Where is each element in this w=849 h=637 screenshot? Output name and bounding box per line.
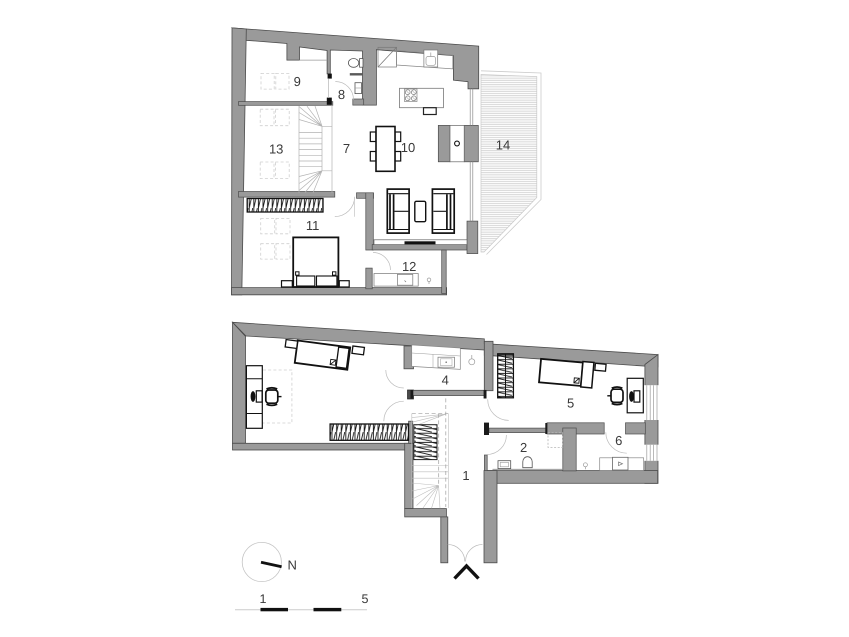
svg-text:1: 1 [462, 468, 469, 483]
svg-text:10: 10 [401, 140, 415, 155]
svg-text:14: 14 [496, 138, 510, 153]
svg-text:12: 12 [402, 259, 416, 274]
svg-text:4: 4 [442, 372, 449, 387]
svg-text:6: 6 [615, 433, 622, 448]
svg-text:11: 11 [306, 218, 320, 233]
svg-text:2: 2 [520, 440, 527, 455]
svg-text:N: N [288, 558, 297, 573]
svg-text:5: 5 [567, 395, 574, 410]
svg-text:13: 13 [269, 142, 283, 157]
svg-text:9: 9 [294, 74, 301, 89]
svg-text:8: 8 [338, 87, 345, 102]
svg-text:5: 5 [362, 592, 369, 606]
svg-text:1: 1 [260, 592, 267, 606]
svg-text:7: 7 [343, 141, 350, 156]
